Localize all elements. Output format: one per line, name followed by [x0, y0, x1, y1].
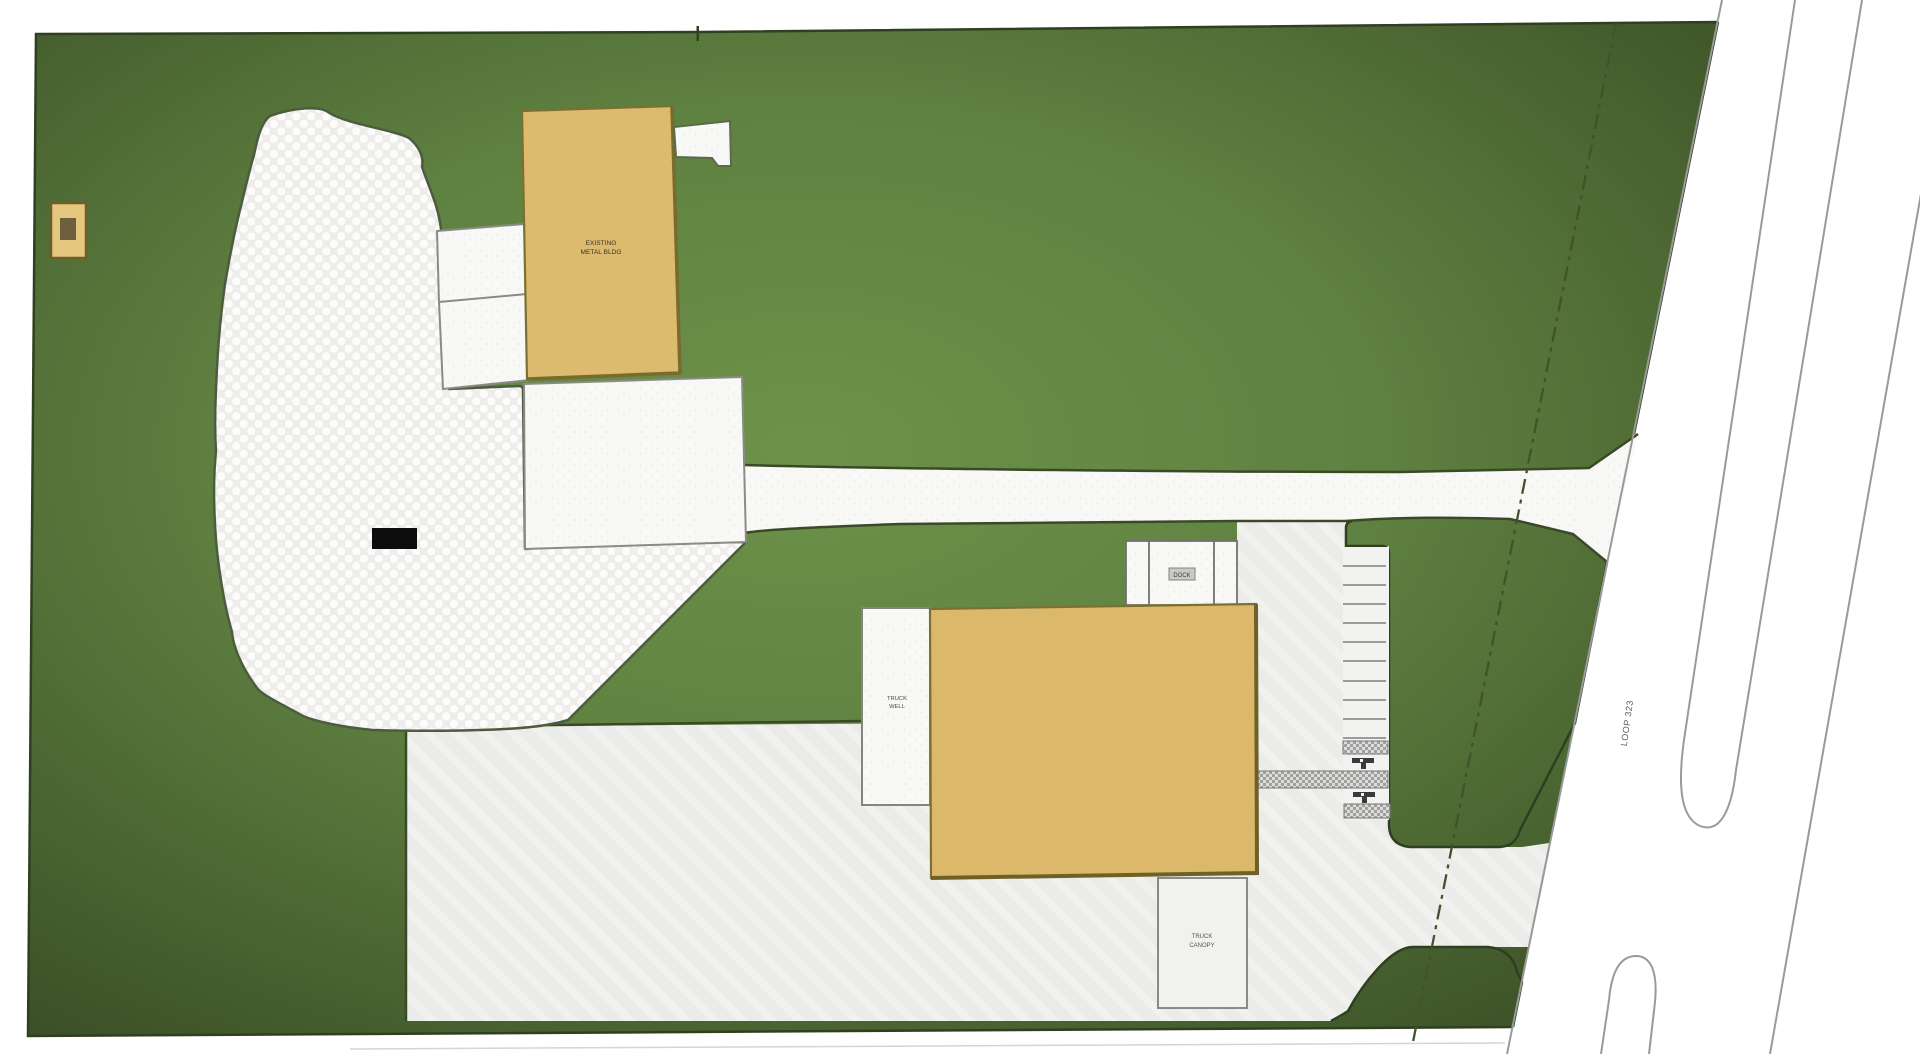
svg-text:WELL: WELL	[889, 704, 906, 710]
svg-text:EXISTING: EXISTING	[586, 240, 617, 247]
svg-text:TRUCK: TRUCK	[887, 696, 907, 702]
svg-text:DOCK: DOCK	[1173, 573, 1190, 579]
svg-text:METAL BLDG: METAL BLDG	[580, 249, 621, 256]
svg-text:TRUCK: TRUCK	[1192, 934, 1213, 940]
svg-text:CANOPY: CANOPY	[1189, 943, 1214, 949]
